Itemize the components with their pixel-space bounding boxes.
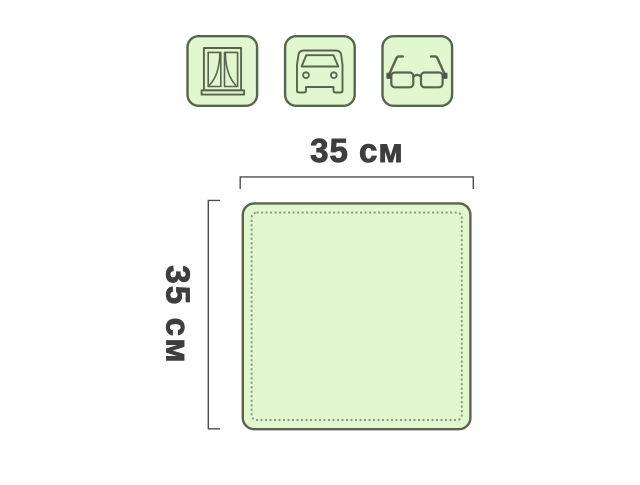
svg-text:35 см: 35 см (160, 265, 197, 365)
svg-text:35 см: 35 см (310, 132, 404, 169)
